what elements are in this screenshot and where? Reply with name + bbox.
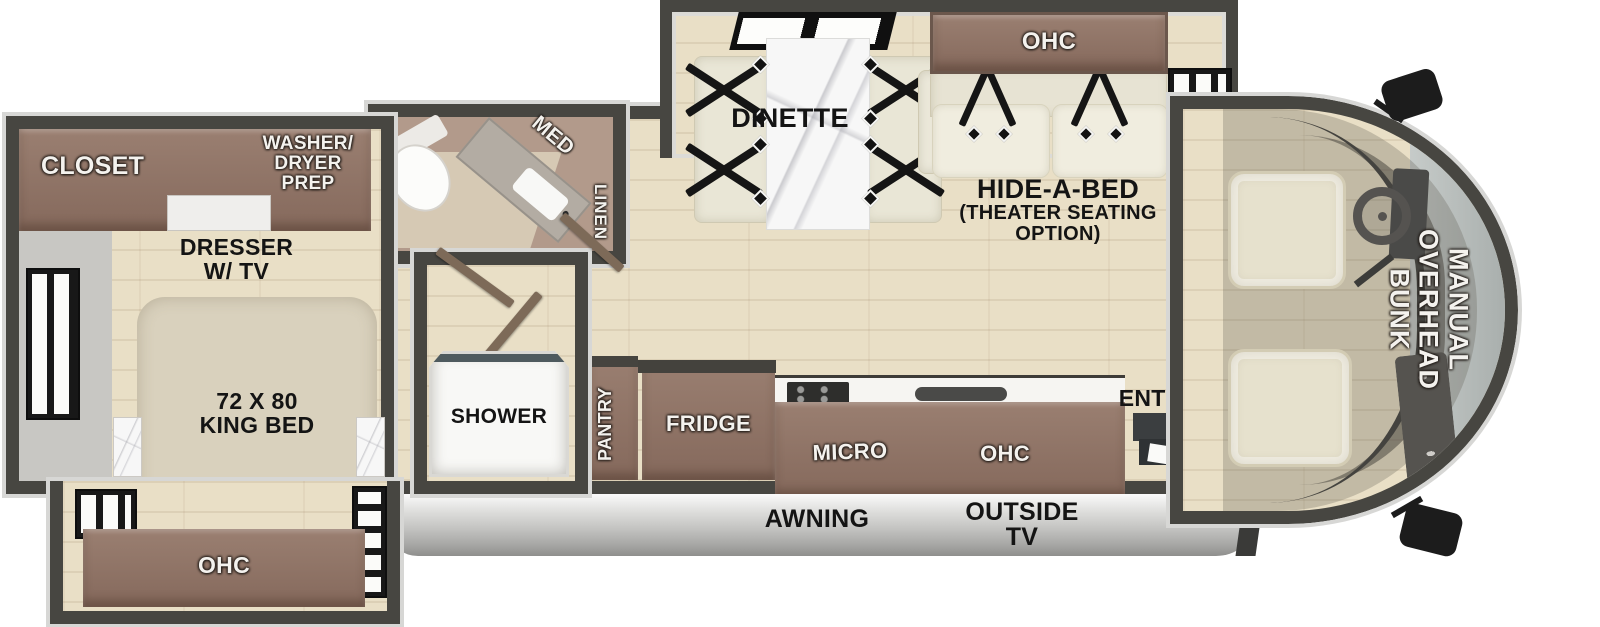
nightstand-right [356, 417, 385, 477]
dinette-chair-frame [678, 132, 770, 210]
bedroom-ohc-label: OHC [83, 553, 365, 577]
pantry-cabinet: PANTRY [588, 356, 638, 480]
fridge: FRIDGE [642, 360, 775, 480]
bedroom-window [26, 268, 80, 420]
dinette-table [766, 38, 870, 230]
bed-slideout: OHC [50, 481, 400, 624]
seat-belts [1072, 70, 1128, 144]
overhead-bunk-label: MANUAL OVERHEAD BUNK [1316, 200, 1519, 420]
sofa-ohc-cabinet: OHC [930, 12, 1168, 74]
seat-belts [960, 70, 1016, 144]
dinette-sofa-slideout: DINETTE OHC [660, 0, 1238, 158]
kitchen-lower-cabinets: MICRO OHC [775, 402, 1125, 497]
fridge-top-edge [638, 360, 776, 373]
closet-cabinet: CLOSET WASHER/ DRYER PREP [19, 129, 371, 231]
cab-area: MANUAL OVERHEAD BUNK [1170, 96, 1518, 524]
shower-glass [432, 354, 566, 362]
side-mirror-bottom [1398, 502, 1465, 559]
dresser-tv-label: DRESSER W/ TV [154, 235, 319, 283]
awning-bar: AWNING OUTSIDE TV [392, 494, 1252, 556]
awning-label: AWNING [752, 506, 882, 532]
outside-tv-label: OUTSIDE TV [957, 500, 1087, 550]
kitchen-sink [915, 387, 1007, 401]
pantry-counter-edge [588, 356, 638, 367]
closet-label: CLOSET [41, 153, 144, 179]
kitchen-ohc-label: OHC [950, 442, 1060, 465]
bedroom-ohc-cabinet: OHC [83, 529, 365, 607]
sofa-ohc-label: OHC [933, 29, 1165, 54]
dinette-label: DINETTE [700, 104, 880, 132]
shower-label: SHOWER [432, 406, 566, 428]
bathroom-door-leaf [435, 247, 515, 308]
micro-label: MICRO [785, 438, 916, 466]
nightstand-left [113, 417, 142, 477]
bedroom: CLOSET WASHER/ DRYER PREP DRESSER W/ TV … [6, 116, 394, 494]
washer-dryer-space [167, 195, 271, 231]
shower-room: SHOWER [414, 252, 588, 494]
washer-dryer-label: WASHER/ DRYER PREP [247, 134, 369, 194]
king-bed-label: 72 X 80 KING BED [137, 389, 377, 437]
fridge-label: FRIDGE [642, 412, 775, 435]
rv-floorplan: PANTRY FRIDGE MICRO OHC HIDE-A-BED (THEA… [0, 0, 1600, 627]
pantry-label: PANTRY [596, 372, 615, 476]
shower-pan: SHOWER [429, 351, 569, 477]
hide-a-bed-label: HIDE-A-BED (THEATER SEATING OPTION) [918, 175, 1198, 245]
